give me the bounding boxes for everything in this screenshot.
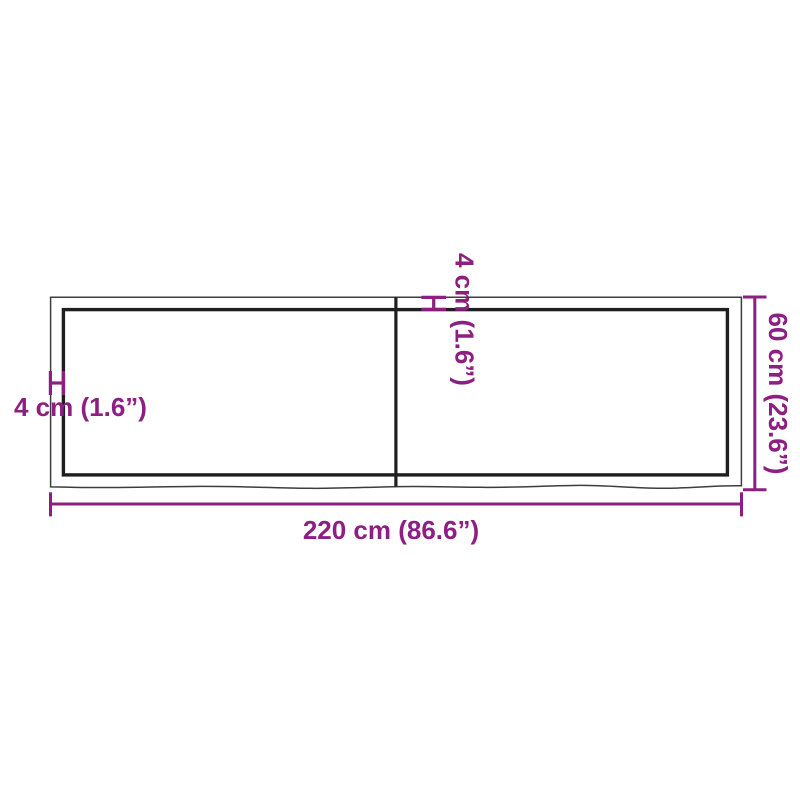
svg-text:4 cm (1.6”): 4 cm (1.6”)	[450, 253, 480, 386]
svg-text:220 cm (86.6”): 220 cm (86.6”)	[303, 515, 479, 545]
svg-text:60 cm (23.6”): 60 cm (23.6”)	[763, 313, 793, 475]
svg-text:4 cm (1.6”): 4 cm (1.6”)	[14, 392, 147, 422]
